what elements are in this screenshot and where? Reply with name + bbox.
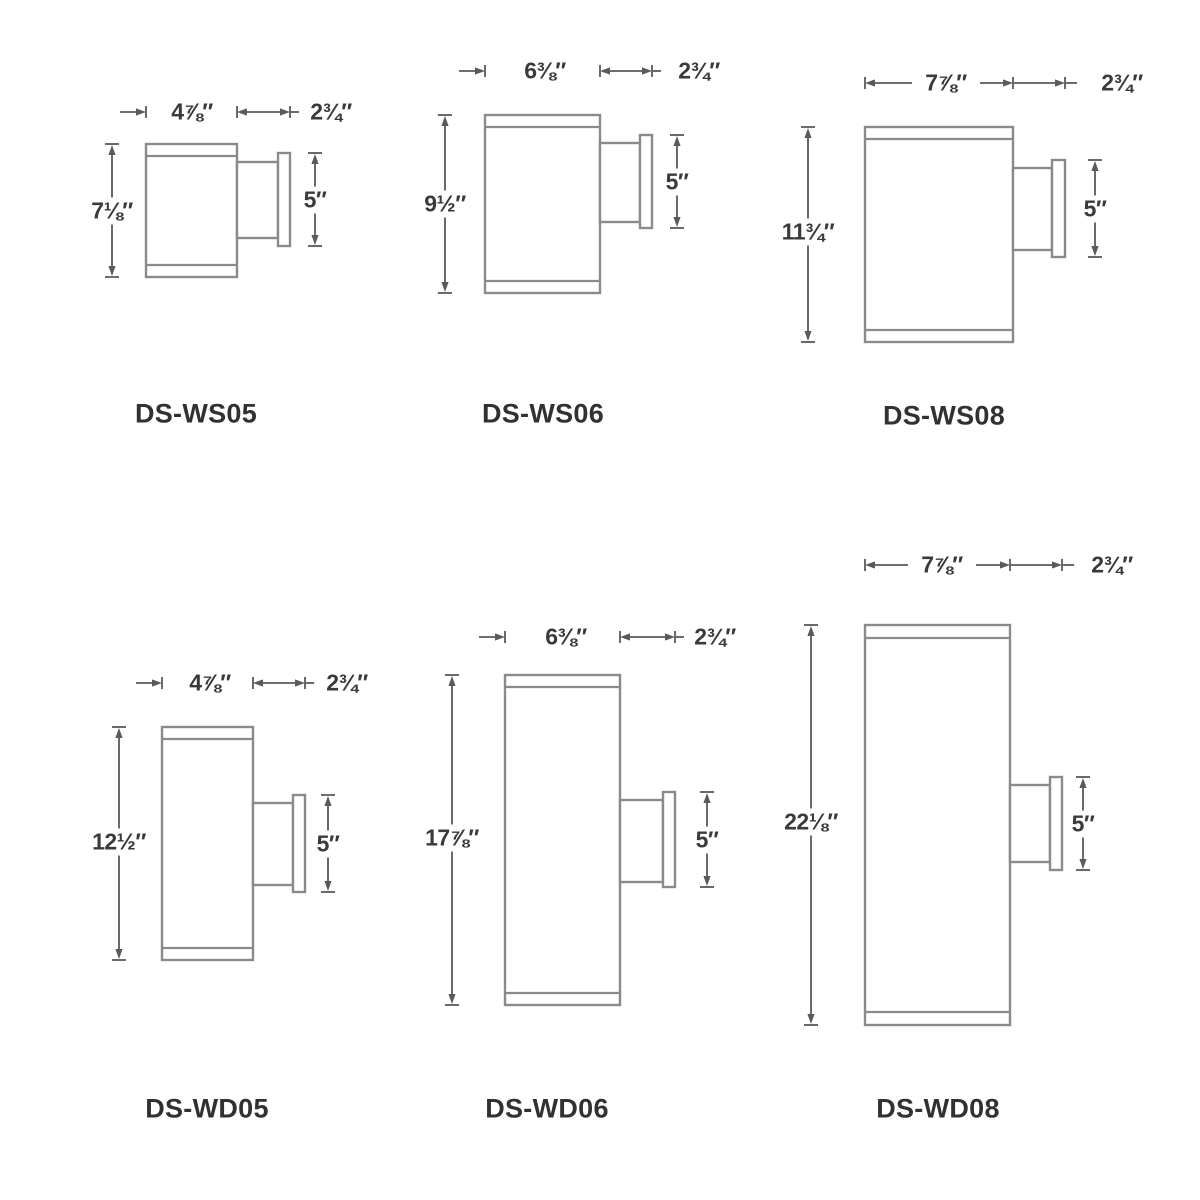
fixture-line-drawings (0, 0, 1200, 1200)
model-number-label: DS-WS06 (482, 399, 604, 430)
ds-wd05-drawing (112, 677, 335, 960)
height-dimension-label: 12½″ (89, 829, 149, 856)
mount-depth-dimension-label: 2¾″ (691, 624, 739, 651)
model-number-label: DS-WD06 (485, 1094, 609, 1125)
ds-wd06-drawing (445, 631, 714, 1005)
dimension-spec-sheet: 4⅞″ 2¾″ 7⅛″ 5″ DS-WS05 6⅜″ 2¾″ 9½″ 5″ DS… (0, 0, 1200, 1200)
mount-depth-dimension-label: 2¾″ (1088, 552, 1136, 579)
backplate-height-dimension-label: 5″ (301, 187, 330, 214)
width-dimension-label: 7⅞″ (918, 552, 966, 579)
width-dimension-label: 4⅞″ (168, 99, 216, 126)
mount-depth-dimension-label: 2¾″ (675, 58, 723, 85)
ds-ws08-drawing (801, 77, 1102, 342)
backplate-height-dimension-label: 5″ (314, 831, 343, 858)
model-number-label: DS-WS05 (135, 399, 257, 430)
ds-wd08-drawing (804, 559, 1090, 1025)
backplate-height-dimension-label: 5″ (1081, 196, 1110, 223)
mount-depth-dimension-label: 2¾″ (307, 99, 355, 126)
backplate-height-dimension-label: 5″ (663, 169, 692, 196)
height-dimension-label: 11¾″ (779, 219, 838, 246)
backplate-height-dimension-label: 5″ (693, 827, 722, 854)
model-number-label: DS-WD05 (145, 1094, 269, 1125)
ds-ws05-drawing (105, 106, 322, 277)
height-dimension-label: 17⅞″ (422, 825, 482, 852)
backplate-height-dimension-label: 5″ (1069, 811, 1098, 838)
model-number-label: DS-WS08 (883, 401, 1005, 432)
width-dimension-label: 6⅜″ (521, 58, 569, 85)
model-number-label: DS-WD08 (876, 1094, 1000, 1125)
height-dimension-label: 7⅛″ (88, 198, 136, 225)
mount-depth-dimension-label: 2¾″ (1098, 70, 1146, 97)
mount-depth-dimension-label: 2¾″ (323, 670, 371, 697)
width-dimension-label: 6⅜″ (542, 624, 590, 651)
height-dimension-label: 9½″ (421, 191, 469, 218)
width-dimension-label: 4⅞″ (186, 670, 234, 697)
width-dimension-label: 7⅞″ (922, 70, 970, 97)
height-dimension-label: 22⅛″ (781, 809, 841, 836)
ds-ws06-drawing (438, 65, 684, 293)
